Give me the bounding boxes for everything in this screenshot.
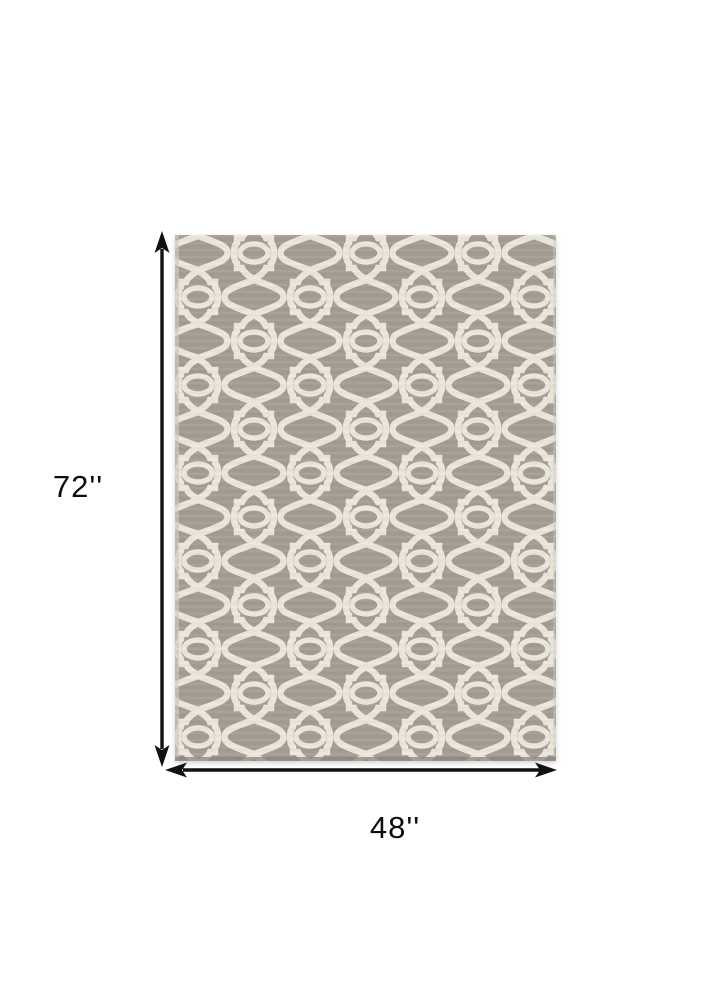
width-dimension-label: 48'' [370, 810, 420, 846]
rug-dimension-diagram: 72'' 48'' [0, 0, 725, 1000]
height-dimension-arrow [155, 231, 170, 767]
height-dimension-label: 72'' [53, 469, 103, 505]
dimension-arrows [0, 0, 725, 1000]
width-dimension-arrow [165, 763, 557, 778]
